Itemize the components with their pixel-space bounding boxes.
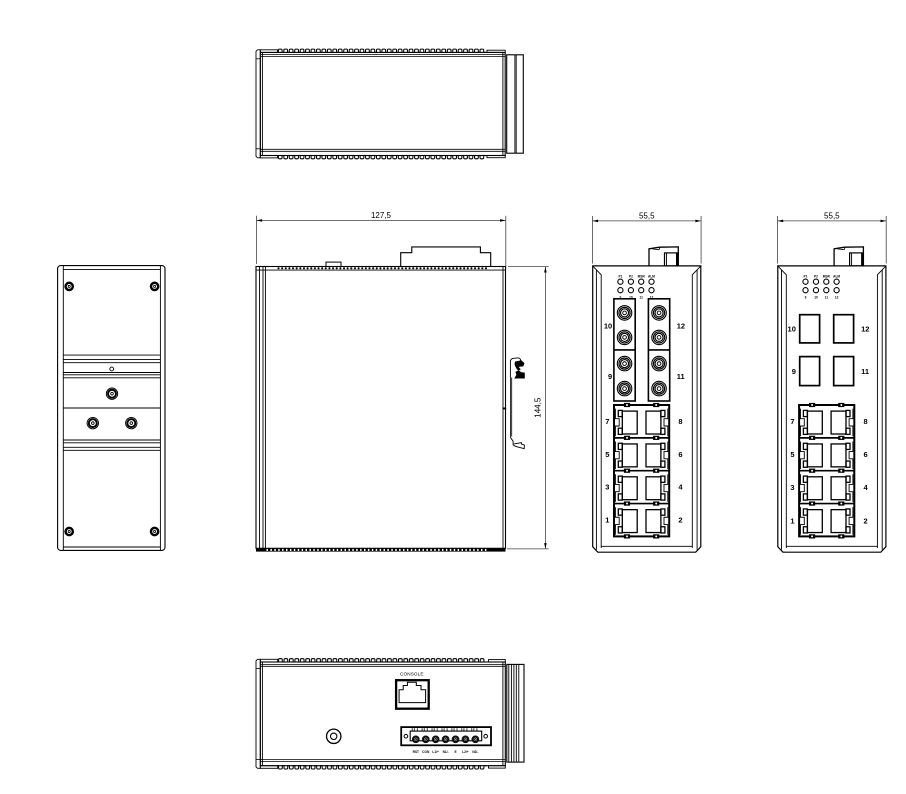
svg-text:7: 7 bbox=[790, 417, 794, 426]
svg-text:3: 3 bbox=[605, 483, 609, 492]
svg-text:L2/+: L2/+ bbox=[462, 750, 469, 754]
svg-text:P1: P1 bbox=[804, 274, 808, 278]
svg-text:11: 11 bbox=[640, 296, 644, 300]
svg-text:9: 9 bbox=[805, 296, 807, 300]
svg-text:P1: P1 bbox=[618, 274, 622, 278]
svg-text:2: 2 bbox=[678, 516, 682, 525]
svg-text:8: 8 bbox=[864, 417, 868, 426]
svg-text:6: 6 bbox=[864, 450, 868, 459]
svg-text:8: 8 bbox=[678, 417, 682, 426]
svg-text:L1/+: L1/+ bbox=[432, 750, 439, 754]
svg-text:127,5: 127,5 bbox=[371, 211, 392, 220]
svg-text:CON: CON bbox=[422, 750, 430, 754]
svg-text:4: 4 bbox=[678, 483, 683, 492]
svg-text:N2/-: N2/- bbox=[472, 750, 478, 754]
svg-text:12: 12 bbox=[861, 324, 869, 333]
svg-text:55,5: 55,5 bbox=[639, 212, 655, 221]
svg-text:144,5: 144,5 bbox=[534, 397, 543, 418]
svg-text:ALM: ALM bbox=[648, 274, 655, 278]
svg-text:3: 3 bbox=[790, 483, 794, 492]
svg-text:2: 2 bbox=[864, 516, 868, 525]
svg-text:E: E bbox=[454, 750, 456, 754]
svg-text:55,5: 55,5 bbox=[824, 212, 840, 221]
svg-text:10: 10 bbox=[814, 296, 818, 300]
svg-text:5: 5 bbox=[605, 450, 609, 459]
svg-text:MSR: MSR bbox=[823, 274, 831, 278]
svg-text:11: 11 bbox=[861, 367, 869, 376]
svg-text:12: 12 bbox=[835, 296, 839, 300]
svg-text:9: 9 bbox=[608, 372, 612, 381]
svg-text:ALM: ALM bbox=[833, 274, 840, 278]
svg-text:12: 12 bbox=[677, 321, 685, 330]
svg-text:P2: P2 bbox=[629, 274, 633, 278]
svg-text:11: 11 bbox=[825, 296, 829, 300]
svg-text:5: 5 bbox=[790, 450, 794, 459]
svg-text:11: 11 bbox=[677, 372, 685, 381]
svg-text:CONSOLE: CONSOLE bbox=[400, 672, 424, 677]
svg-text:1: 1 bbox=[605, 516, 609, 525]
svg-text:1: 1 bbox=[790, 516, 794, 525]
svg-text:10: 10 bbox=[788, 324, 796, 333]
svg-text:RST: RST bbox=[413, 750, 419, 754]
svg-text:9: 9 bbox=[792, 367, 796, 376]
svg-text:P2: P2 bbox=[814, 274, 818, 278]
svg-text:7: 7 bbox=[605, 417, 609, 426]
svg-text:10: 10 bbox=[604, 321, 612, 330]
svg-text:4: 4 bbox=[864, 483, 869, 492]
svg-text:6: 6 bbox=[678, 450, 682, 459]
svg-text:MSR: MSR bbox=[638, 274, 646, 278]
svg-text:N1/-: N1/- bbox=[443, 750, 449, 754]
